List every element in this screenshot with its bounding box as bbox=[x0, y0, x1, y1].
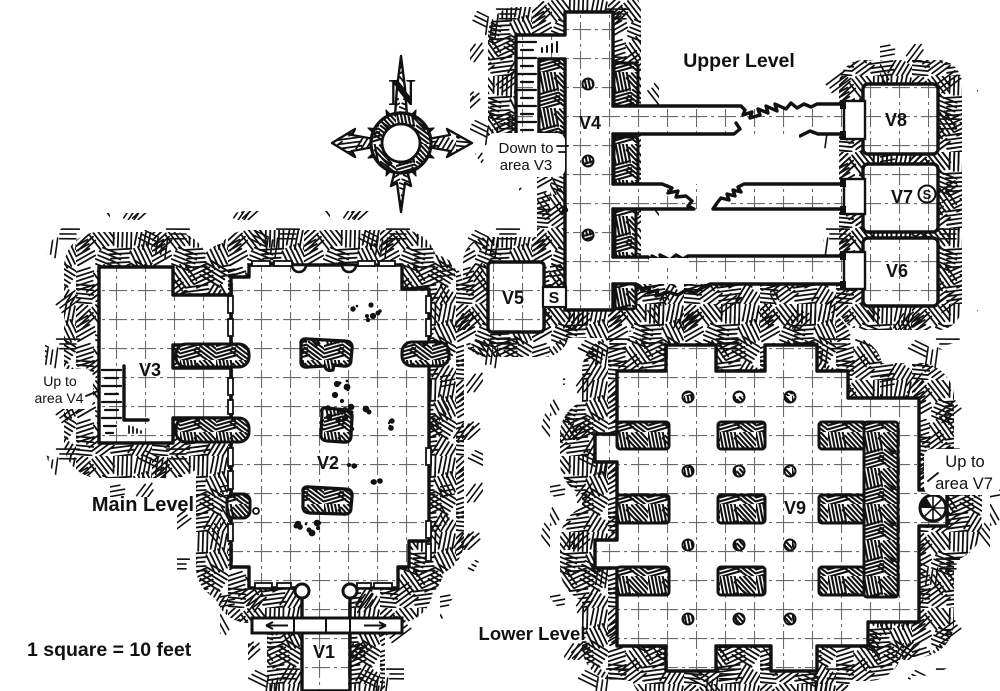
svg-text:area V4: area V4 bbox=[34, 390, 83, 406]
svg-text:V3: V3 bbox=[139, 360, 161, 380]
svg-text:V9: V9 bbox=[784, 498, 806, 518]
svg-text:V6: V6 bbox=[886, 261, 908, 281]
svg-text:V4: V4 bbox=[579, 113, 601, 133]
svg-text:Main Level: Main Level bbox=[92, 494, 194, 516]
svg-text:V2: V2 bbox=[317, 453, 339, 473]
svg-text:1 square = 10 feet: 1 square = 10 feet bbox=[27, 639, 192, 661]
svg-text:V8: V8 bbox=[885, 110, 907, 130]
svg-text:Lower Level: Lower Level bbox=[479, 623, 586, 644]
svg-text:N: N bbox=[388, 72, 415, 114]
svg-text:area V3: area V3 bbox=[500, 157, 553, 174]
svg-text:V5: V5 bbox=[502, 288, 524, 308]
svg-text:area V7: area V7 bbox=[935, 475, 993, 493]
svg-text:Upper Level: Upper Level bbox=[683, 50, 795, 72]
svg-text:S: S bbox=[923, 187, 932, 202]
svg-text:V7: V7 bbox=[891, 187, 913, 207]
svg-text:Up to: Up to bbox=[43, 373, 77, 389]
svg-text:Down to: Down to bbox=[498, 140, 553, 157]
svg-text:S: S bbox=[549, 290, 560, 307]
svg-text:Up to: Up to bbox=[945, 453, 984, 471]
svg-text:V1: V1 bbox=[313, 642, 335, 662]
